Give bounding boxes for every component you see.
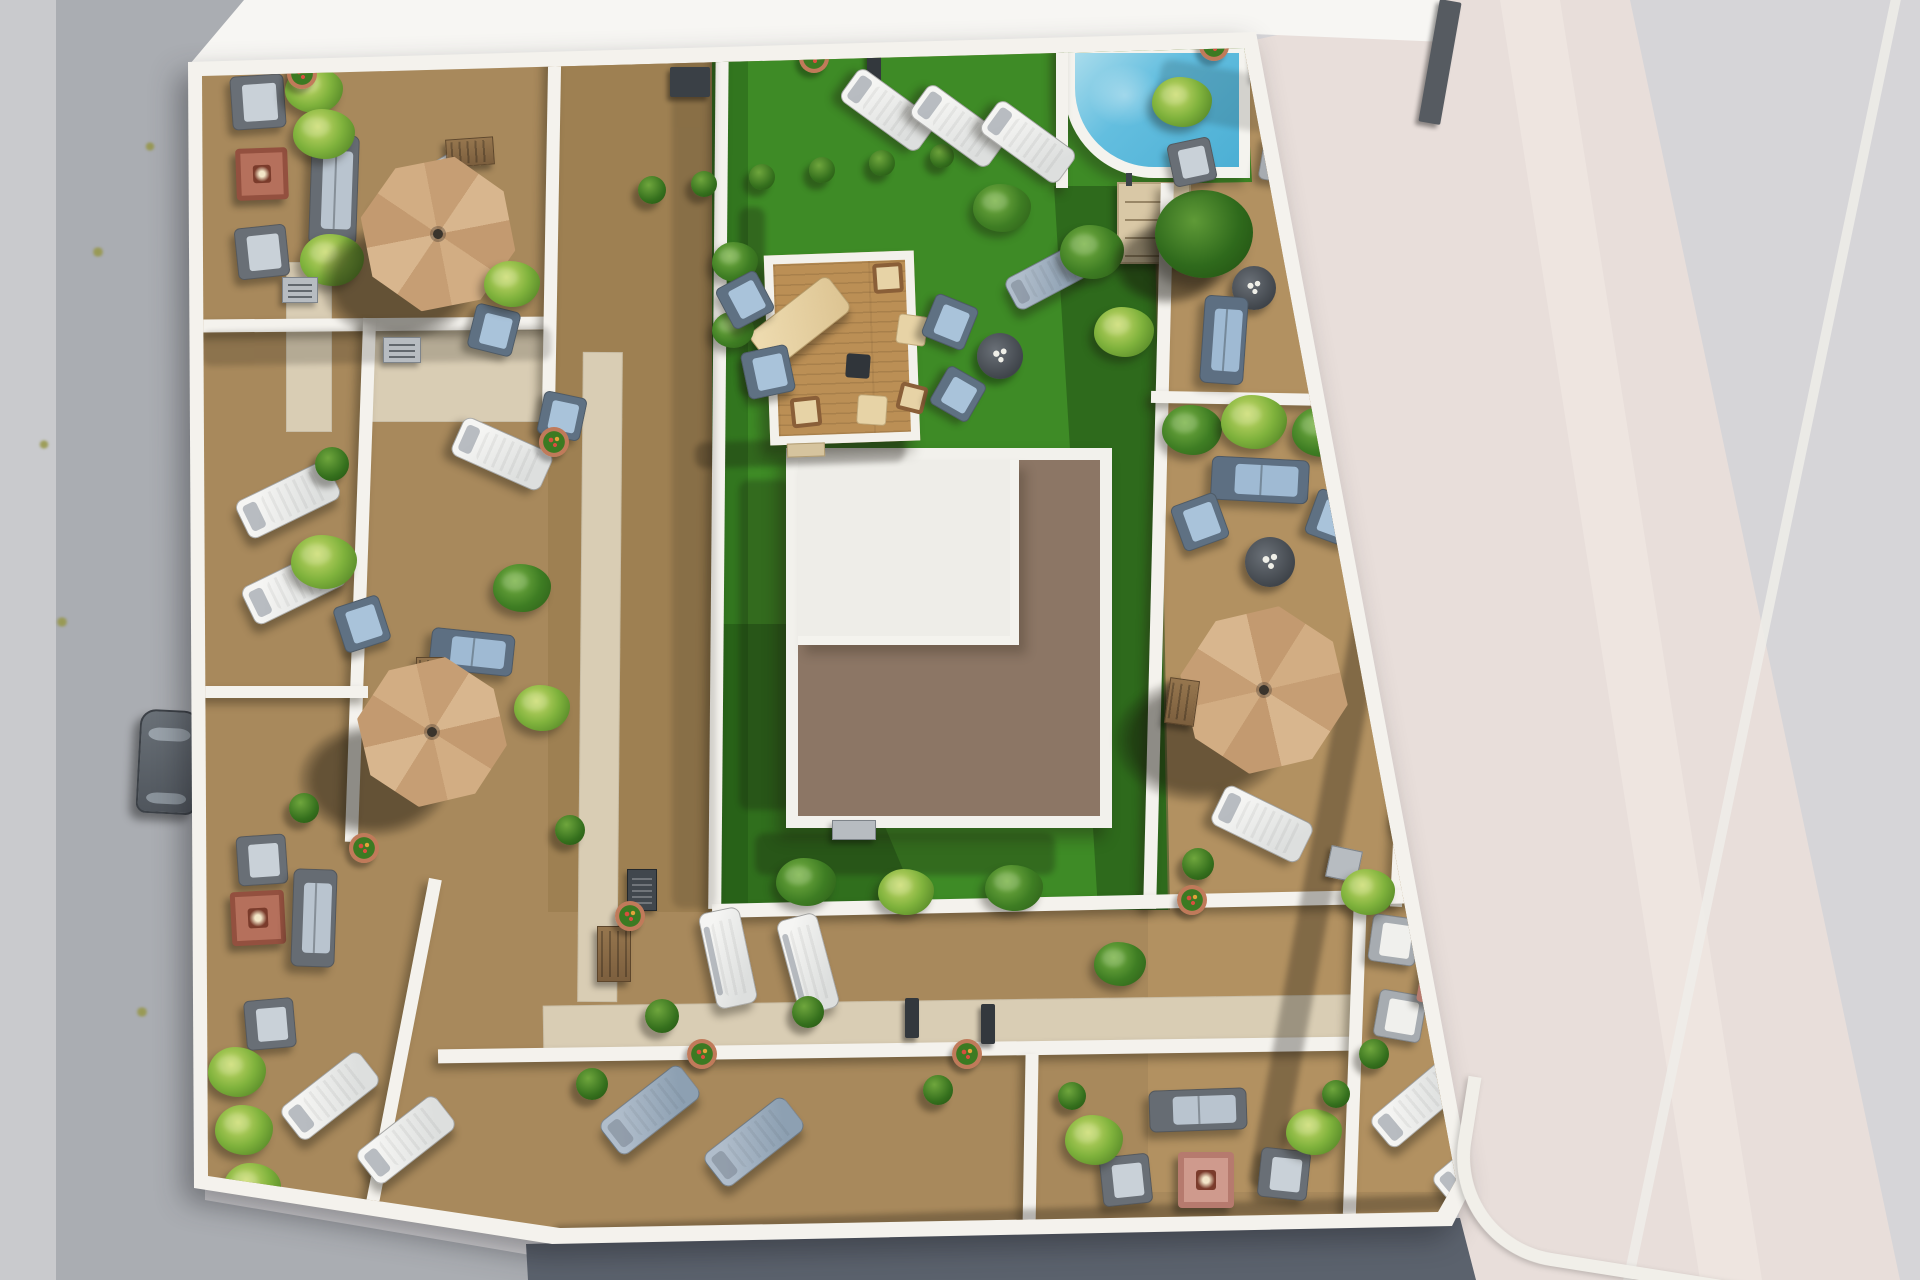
foreground-overlays: [0, 0, 1920, 1280]
rooftop-aerial-render: [0, 0, 1920, 1280]
street-curb-corner: [1441, 1075, 1775, 1280]
